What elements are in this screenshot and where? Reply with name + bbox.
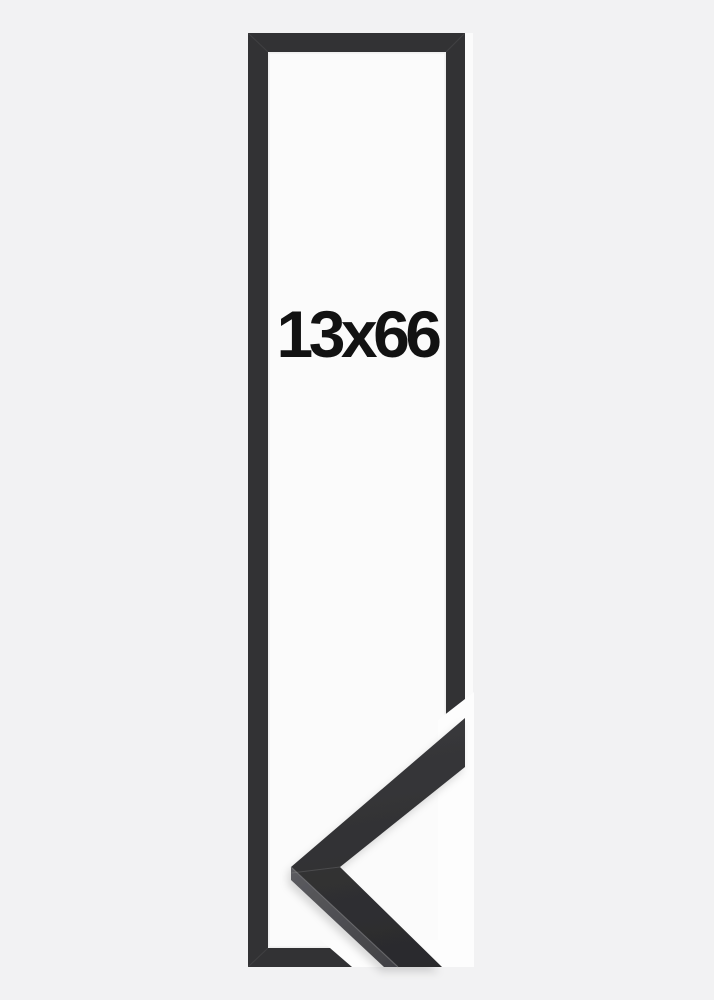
product-image-page: 13x66 xyxy=(0,0,714,1000)
size-label: 13x66 xyxy=(268,301,446,367)
frame-product-photo xyxy=(0,0,714,1000)
